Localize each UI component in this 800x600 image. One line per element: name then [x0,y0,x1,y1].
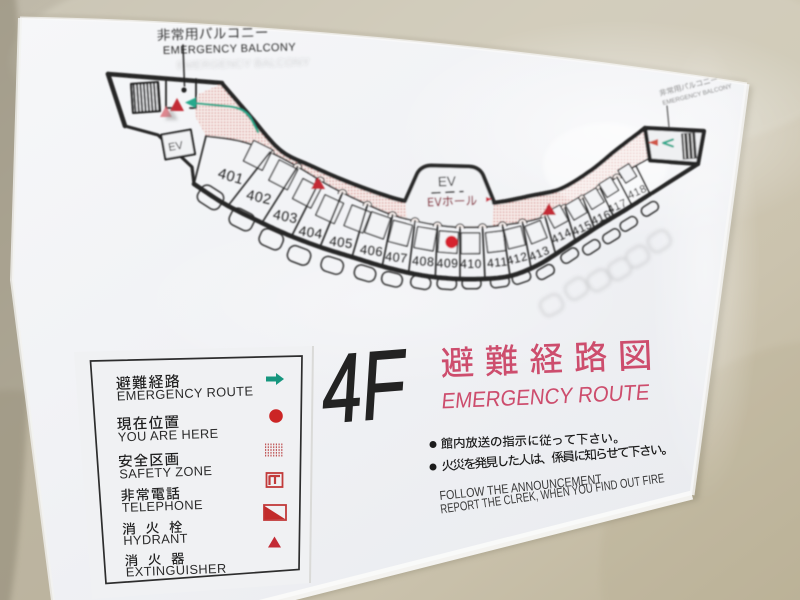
svg-text:4F: 4F [317,330,413,445]
svg-text:407: 407 [384,250,408,266]
svg-text:TELEPHONE: TELEPHONE [122,497,204,515]
svg-text:405: 405 [328,233,353,251]
svg-text:406: 406 [359,242,384,260]
svg-text:EV: EV [438,174,457,190]
svg-text:408: 408 [412,254,435,269]
svg-text:409: 409 [436,256,458,270]
svg-text:410: 410 [460,257,482,271]
svg-text:HYDRANT: HYDRANT [123,531,188,548]
